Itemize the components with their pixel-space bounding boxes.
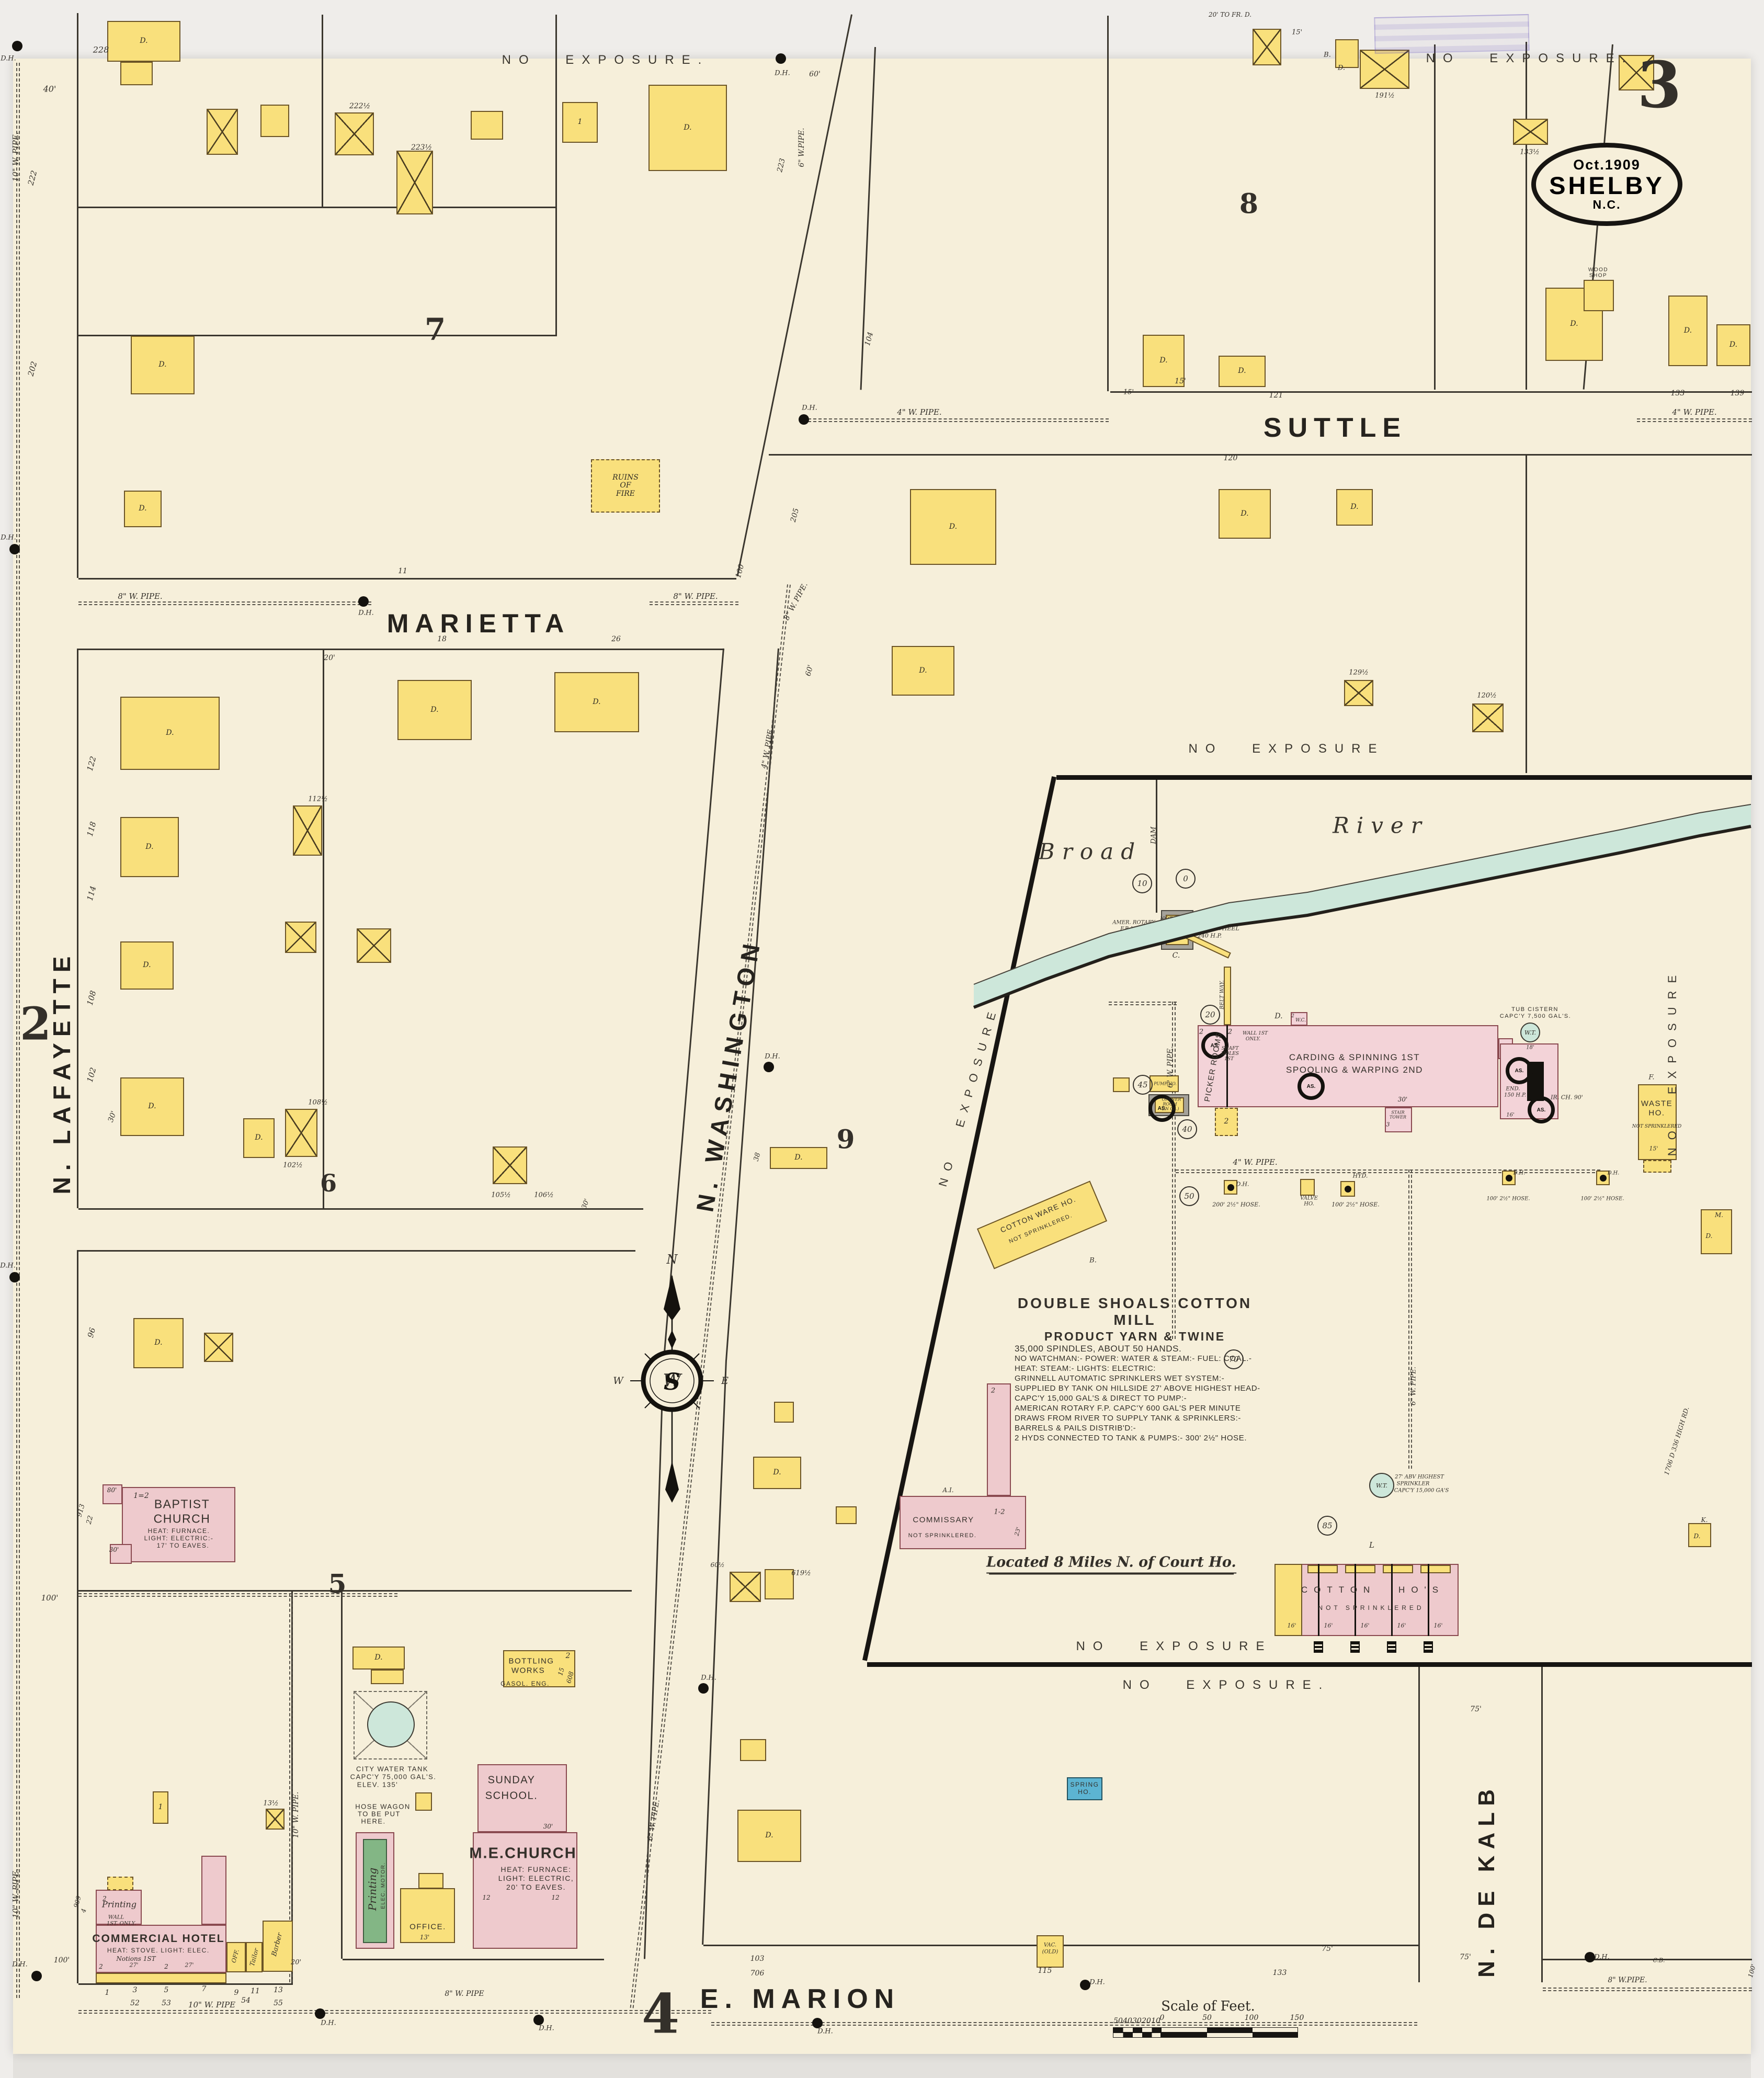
building: D. (1716, 324, 1750, 366)
sheet-date: Oct.1909 (1573, 157, 1641, 173)
building: D. (120, 1077, 184, 1136)
map-label: 26 (611, 635, 621, 643)
hydrant-marker (1600, 1175, 1607, 1182)
map-label: SHAFT (1222, 1046, 1239, 1051)
map-label: 1=2 (133, 1492, 149, 1500)
map-label: 13½ (263, 1800, 278, 1808)
map-label: N. LAFAYETTE (48, 950, 76, 1195)
map-label: WOOD (1588, 267, 1608, 273)
map-label: D.H. (802, 404, 817, 412)
street-line (78, 649, 724, 650)
map-label: 120 (1224, 454, 1238, 462)
water-pipe-line (1637, 418, 1752, 422)
map-label: BOTTLING (508, 1657, 554, 1666)
building (207, 109, 238, 155)
mill-detail-line: 35,000 SPINDLES, ABOUT 50 HANDS. (1015, 1344, 1260, 1354)
map-label: 228 (93, 45, 109, 55)
map-label: NO EXPOSURE (1076, 1639, 1272, 1654)
map-label: 100' (54, 1956, 70, 1965)
building: D. (243, 1118, 275, 1158)
building (371, 1670, 404, 1684)
building (493, 1146, 527, 1184)
map-label: 22 (85, 1515, 95, 1525)
map-label: 2 (1199, 1028, 1203, 1036)
map-label: 5 (164, 1986, 169, 1994)
map-label: HERE. (361, 1818, 385, 1825)
map-label: HO. (1078, 1788, 1091, 1796)
map-label: 12 (551, 1894, 559, 1901)
building (293, 805, 322, 856)
map-label: 8 (1239, 188, 1258, 220)
hydrant-marker (764, 1062, 774, 1072)
map-label: 75' (1322, 1945, 1333, 1953)
map-label: 96 (86, 1326, 97, 1338)
building (836, 1506, 857, 1524)
map-label: D. (1705, 1232, 1712, 1240)
street-line (78, 1983, 293, 1985)
map-label: SPOOLING & WARPING 2ND (1286, 1065, 1423, 1075)
map-label: 18 (437, 635, 447, 643)
map-label: 20' TO EAVES. (506, 1883, 566, 1891)
map-label: N. WASHINGTON (690, 936, 766, 1214)
building (1387, 1641, 1396, 1653)
hydrant-marker (1080, 1980, 1090, 1990)
map-label: M. (1715, 1211, 1723, 1219)
map-label: 100 (734, 563, 746, 579)
building-label: D. (244, 1119, 274, 1157)
map-label: 4 (642, 1982, 679, 2046)
map-label: D.H. (1, 55, 16, 63)
scale-bar-segment (1161, 2027, 1298, 2032)
map-label: 4" W. PIPE. (1672, 407, 1716, 417)
map-label: 16' (1433, 1622, 1442, 1629)
building (765, 1569, 794, 1599)
map-label: VALVE (1300, 1196, 1318, 1201)
map-label: 122 (85, 755, 98, 772)
map-label: TO BE PUT (358, 1810, 401, 1818)
map-label: 9 (837, 1124, 855, 1155)
map-label: (IN CL.) (1162, 1107, 1179, 1111)
map-label: ELEV. 135' (357, 1781, 398, 1789)
map-label: 15' (1649, 1145, 1658, 1152)
map-label: 1706 D 336 HIGH RD. (1663, 1406, 1690, 1476)
map-label: D.H. (0, 1262, 16, 1270)
map-label: 20' (291, 1959, 301, 1967)
map-label: CHURCH (154, 1512, 211, 1526)
map-label: HEAT: FURNACE. (148, 1527, 210, 1535)
map-label: NO EXPOSURE. (502, 53, 710, 67)
map-label: 102½ (283, 1162, 302, 1169)
scale-tick: 0 (1160, 2014, 1165, 2022)
map-label: 54 (241, 1996, 251, 2005)
building: D. (1668, 296, 1708, 366)
street-line (78, 207, 557, 208)
map-label: 104 (863, 331, 875, 347)
scale-bar (1113, 2027, 1298, 2038)
map-label: D.H. (1, 534, 16, 542)
street-line (1419, 1663, 1420, 1982)
water-pipe-line (78, 601, 371, 605)
map-label: 3 (1386, 1121, 1390, 1128)
map-label: 30' (109, 1546, 119, 1553)
building-label: D. (650, 86, 726, 170)
building (1307, 1565, 1338, 1573)
street-line (323, 649, 325, 1208)
map-label: 16' (1360, 1622, 1369, 1629)
building (96, 1973, 226, 1983)
map-label: 121 (1269, 391, 1283, 400)
map-label: 112½ (308, 796, 327, 803)
map-label: 5 (328, 1569, 347, 1599)
map-label: K. (1701, 1516, 1708, 1524)
map-label: NO EXPOSURE. (1426, 51, 1634, 66)
map-label: MARIETTA (387, 608, 571, 639)
mill-title: DOUBLE SHOALS COTTON MILL (1009, 1295, 1260, 1328)
building (1428, 1564, 1429, 1636)
map-label: 15' (1175, 377, 1186, 385)
map-label: D.H. (701, 1674, 716, 1682)
map-label: COMMERCIAL HOTEL (92, 1933, 224, 1945)
map-label: WASTE (1641, 1099, 1672, 1108)
street-line (737, 15, 852, 576)
map-label: 55 (274, 1999, 283, 2007)
building: D. (352, 1646, 405, 1670)
building (730, 1572, 761, 1602)
map-label: CITY WATER TANK (356, 1765, 428, 1773)
mill-fence-line (867, 1662, 1752, 1667)
map-label: 191½ (1375, 92, 1394, 100)
map-label: CARDING & SPINNING 1ST (1289, 1052, 1420, 1063)
map-label: HEAT: FURNACE: (500, 1865, 571, 1873)
map-label: 6" W.PIPE. (798, 128, 806, 167)
building-label: D. (1220, 357, 1265, 386)
map-label: 909 (72, 1895, 82, 1909)
building-label: D. (1669, 297, 1706, 365)
building-label: D. (1220, 490, 1270, 538)
building-label: 1 (563, 103, 597, 142)
map-label: 80' (107, 1486, 117, 1494)
hydrant-marker (812, 2018, 823, 2028)
building-label: 2 (1216, 1109, 1237, 1135)
svg-text:W: W (663, 1370, 683, 1391)
map-label: 17' TO EAVES. (157, 1542, 210, 1549)
water-pipe-line (808, 418, 1109, 422)
scale-title: Scale of Feet. (1161, 1998, 1255, 2014)
map-label: 120½ (1477, 692, 1496, 700)
map-label: SUNDAY (488, 1775, 536, 1787)
building-label: RUINS OF FIRE (592, 460, 659, 512)
map-label: SUTTLE (1264, 412, 1407, 444)
street-line (78, 578, 736, 580)
map-label: 8" W. PIPE (445, 1990, 484, 1998)
building: D. (124, 491, 162, 527)
building (1513, 119, 1548, 145)
map-label: 38 (753, 1152, 762, 1162)
street-line (342, 1590, 343, 1959)
mill-detail-line: SUPPLIED BY TANK ON HILLSIDE 27' ABOVE H… (1015, 1383, 1260, 1393)
building-label: D. (1337, 490, 1372, 525)
building: D. (131, 336, 195, 394)
circled-number: 40 (1177, 1119, 1197, 1139)
water-tank-icon: W.T. (1520, 1023, 1540, 1042)
building: D. (910, 489, 996, 565)
hydrant-marker (1506, 1175, 1512, 1182)
building: RUINS OF FIRE (591, 459, 660, 513)
building-label: D. (121, 818, 178, 876)
building-label: D. (132, 337, 194, 393)
building: D. (1219, 356, 1266, 387)
building (1253, 29, 1281, 65)
building-label: D. (754, 1458, 800, 1488)
building (774, 1402, 794, 1423)
building-label: D. (1717, 325, 1749, 365)
map-label: D. (1693, 1532, 1700, 1540)
building: D. (1219, 489, 1271, 539)
map-label: WALL 1ST (1243, 1031, 1268, 1036)
map-label: HOLES (1221, 1051, 1239, 1057)
building (1226, 1025, 1228, 1107)
building (1420, 1565, 1451, 1573)
map-label: L (1369, 1540, 1374, 1550)
water-pipe-line (1543, 1988, 1752, 1991)
map-label: 100' 2½" HOSE. (1580, 1196, 1624, 1202)
map-label: 100' 2½" HOSE. (1486, 1196, 1530, 1202)
building (1391, 1564, 1393, 1636)
mill-description: DOUBLE SHOALS COTTON MILL PRODUCT YARN &… (1009, 1295, 1260, 1443)
map-label: 102 (85, 1066, 98, 1083)
compass-rose-icon: S W (620, 1253, 724, 1525)
hydrant-marker (1227, 1184, 1234, 1191)
map-label: 60½ (711, 1561, 725, 1569)
map-label: 223½ (411, 143, 432, 152)
building-label: D. (125, 492, 161, 526)
mill-detail-line: BARRELS & PAILS DISTRIB'D:- (1015, 1423, 1260, 1433)
mill-detail-line: NO WATCHMAN:- POWER: WATER & STEAM:- FUE… (1015, 1354, 1260, 1364)
hydrant-marker (358, 596, 369, 607)
map-label: 2 (164, 1963, 168, 1970)
scale-tick: 150 (1290, 2014, 1304, 2022)
map-label: 6" W. PIPE. (1410, 1367, 1418, 1405)
water-pipe-line (650, 601, 738, 605)
map-label: 133½ (1520, 149, 1539, 156)
building-label: D. (354, 1648, 404, 1668)
building (471, 111, 503, 140)
mill-subtitle: PRODUCT YARN & TWINE (1009, 1330, 1260, 1344)
building: D. (120, 697, 220, 770)
sprinkler-as-icon: AS. (1298, 1073, 1325, 1100)
map-label: D.H. (539, 2025, 554, 2032)
building: D. (892, 646, 954, 696)
hydrant-marker (799, 414, 809, 425)
street-line (1108, 16, 1109, 391)
map-label: 10" W. PIPE. (292, 1792, 300, 1838)
building (396, 151, 433, 214)
map-label: BAPTIST (154, 1497, 210, 1512)
building-label: D. (555, 673, 638, 731)
sanborn-map-page: { "sheet":{"number":"3","oval":{"line1":… (0, 0, 1764, 2078)
street-line (769, 454, 1752, 456)
map-label: LIGHT: ELEC. (161, 1947, 209, 1954)
building (120, 62, 153, 85)
map-label: 4" W. PIPE. (1233, 1157, 1277, 1167)
building: D. (648, 85, 727, 171)
building (1300, 1179, 1315, 1196)
scale-tick: 40 (1123, 2017, 1132, 2025)
map-label: 2 (1228, 1028, 1232, 1036)
map-label: M.E.CHURCH (469, 1845, 576, 1863)
map-label: D.H. (321, 2019, 336, 2027)
mill-details: 35,000 SPINDLES, ABOUT 50 HANDS.NO WATCH… (1009, 1344, 1260, 1443)
map-label: GASOL. ENG. (500, 1680, 550, 1687)
building: D. (1336, 489, 1373, 526)
map-label: 13' (420, 1934, 430, 1941)
building: D. (107, 21, 180, 62)
map-label: 205 (789, 507, 801, 523)
map-label: 6 (320, 1169, 337, 1197)
map-label: 60' (809, 70, 821, 78)
map-label: CAPC'Y 75,000 GAL'S. (350, 1773, 437, 1781)
map-label: 133 (1273, 1969, 1287, 1977)
map-label: 150 H.P. (1504, 1093, 1526, 1098)
map-label: 53 (162, 1999, 171, 2007)
map-label: 30' (1398, 1096, 1408, 1103)
building (987, 1383, 1011, 1496)
map-label: HO. (1304, 1201, 1314, 1207)
map-label: 4" W. PIPE. (897, 407, 941, 417)
map-label: 13 (274, 1986, 283, 1994)
building-label: D. (911, 490, 995, 564)
map-label: WORKS (511, 1666, 545, 1675)
map-label: 15' (1292, 29, 1302, 37)
building (1360, 50, 1409, 89)
water-pipe-line (1176, 1169, 1600, 1173)
scale-tick: 50 (1202, 2014, 1212, 2022)
mill-detail-line: 2 HYDS CONNECTED TO TANK & PUMPS:- 300' … (1015, 1433, 1260, 1443)
map-label: NOT SPRINKLERED. (908, 1532, 977, 1539)
street-line (78, 1208, 643, 1210)
water-pipe-line (1408, 1169, 1412, 1469)
map-label: A.I. (942, 1486, 953, 1494)
map-label: 118 (85, 821, 98, 837)
building: D. (753, 1457, 801, 1489)
hydrant-marker (698, 1683, 709, 1694)
map-label: 103 (750, 1955, 765, 1963)
street-line (1542, 1663, 1543, 1982)
building (1318, 1564, 1319, 1636)
map-label: 222½ (349, 102, 370, 110)
map-label: 133 (1671, 389, 1685, 398)
map-label: 200' 2½" HOSE. (1212, 1201, 1260, 1208)
map-label: ONLY. (1246, 1037, 1260, 1042)
map-label: W.C. (1295, 1018, 1306, 1023)
map-label: D.H. (817, 2028, 833, 2036)
building: D. (397, 680, 472, 740)
map-label: 1ST. ONLY. (107, 1921, 136, 1927)
map-label: OPENER (1162, 1097, 1181, 1102)
map-label: 8" W. PIPE. (673, 592, 718, 601)
circled-number: 45 (1133, 1075, 1153, 1095)
map-label: HYD. (1353, 1173, 1368, 1179)
map-label: 706 (750, 1969, 765, 1978)
map-canvas: S W Oct.1909 SHELBY N.C. DOUBLE SHOALS C… (0, 0, 1764, 2078)
building: D. (737, 1810, 801, 1862)
map-label: LIGHT: ELECTRIC:- (144, 1535, 214, 1542)
map-label: 10" W. PIPE. (11, 1869, 20, 1918)
map-label: 16' (1506, 1112, 1514, 1118)
building: D. (120, 817, 179, 877)
building: 2 (1215, 1108, 1238, 1136)
hydrant-marker (776, 53, 786, 64)
map-label: NO EXPOSURE (1188, 742, 1384, 756)
hydrant-marker (9, 544, 20, 554)
map-label: 2 (99, 1963, 103, 1970)
sprinkler-as-icon: AS. (1506, 1057, 1533, 1084)
map-label: COMMISSARY (913, 1516, 974, 1525)
map-label: SPRING (1070, 1781, 1099, 1788)
map-label: SPRINKLER (1397, 1481, 1430, 1487)
map-label: 4" W. PIPE. (760, 726, 776, 769)
map-label: C.B. (1653, 1957, 1665, 1964)
building (285, 1109, 317, 1157)
water-tank-icon: W.T. (1369, 1473, 1394, 1498)
map-label: 1-2 (994, 1508, 1005, 1516)
map-label: 202 (26, 360, 39, 377)
building: D. (133, 1318, 184, 1368)
building (201, 1856, 226, 1925)
building (260, 105, 289, 137)
map-label: Printing (102, 1900, 136, 1910)
water-pipe-line (78, 1593, 397, 1597)
building-label: D. (771, 1148, 826, 1168)
map-label: D.H. (1594, 1954, 1610, 1961)
building (1472, 703, 1504, 732)
map-label: 108½ (308, 1099, 327, 1107)
map-label: HOSE WAGON (355, 1803, 411, 1811)
map-label: 18' (1526, 1045, 1534, 1051)
map-label: 7 (202, 1985, 207, 1993)
map-label: D.H. (1089, 1979, 1105, 1986)
map-label: 75' (1460, 1953, 1471, 1961)
street-line (1110, 391, 1752, 393)
building-label: D. (121, 943, 173, 989)
map-label: 1ST (1224, 1057, 1234, 1062)
map-label: NOT SPRINKLERED (1632, 1124, 1681, 1129)
map-label: 2 (20, 998, 51, 1051)
building (415, 1792, 432, 1811)
circled-number: 50 (1179, 1186, 1199, 1206)
building (1344, 680, 1373, 706)
scale-tick: 50 (1113, 2017, 1123, 2025)
map-label: STAIR (1391, 1110, 1404, 1115)
map-label: SHOP (1589, 273, 1607, 279)
hydrant-marker (9, 1272, 20, 1282)
map-label: 75' (1470, 1705, 1482, 1713)
map-label: 3 (1637, 47, 1682, 122)
map-label: (OLD) (1042, 1949, 1059, 1955)
map-label: N. DE KALB (1474, 1783, 1500, 1978)
map-label: ELEC. MOTOR. (381, 1862, 386, 1909)
hydrant-marker (1345, 1186, 1351, 1193)
map-label: 114 (85, 885, 98, 902)
map-label: 15' (1123, 389, 1134, 396)
map-label: B. (1324, 51, 1331, 59)
building: D. (554, 672, 639, 732)
map-label: 2 (566, 1652, 571, 1660)
mill-detail-line: HEAT: STEAM:- LIGHTS: ELECTRIC: (1015, 1364, 1260, 1373)
building (1424, 1641, 1433, 1653)
map-label: 1 (105, 1989, 110, 1997)
water-pipe-line (16, 63, 20, 1998)
